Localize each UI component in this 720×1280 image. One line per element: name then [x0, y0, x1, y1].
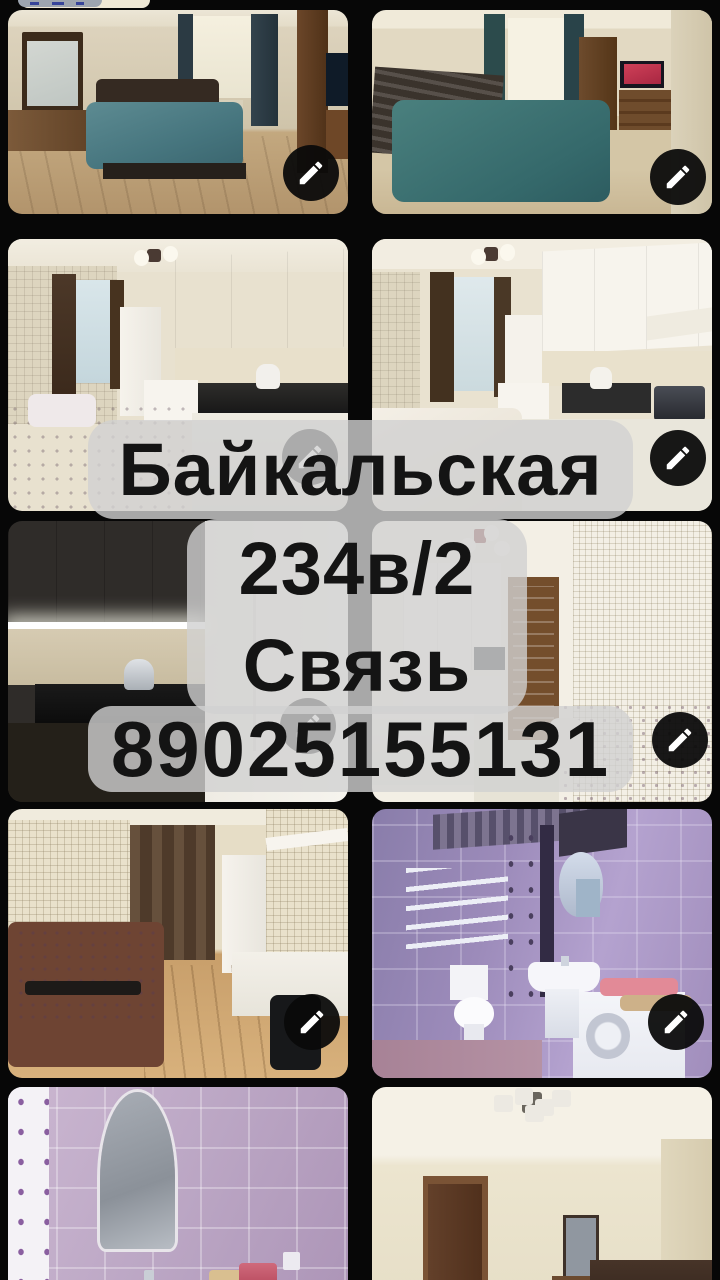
curtain	[430, 272, 454, 403]
floor	[372, 1040, 542, 1078]
edit-badge[interactable]	[648, 994, 704, 1050]
edit-badge[interactable]	[650, 430, 706, 486]
upper-dark-cabinets	[8, 521, 205, 622]
phone-number-text: 89025155131	[111, 707, 610, 791]
faucet	[561, 956, 570, 967]
towel-pink	[600, 978, 678, 995]
lamp-bulb	[500, 244, 515, 260]
ceiling-lamp	[484, 247, 498, 261]
backsplash	[542, 351, 712, 386]
microwave	[654, 386, 705, 421]
chandelier-shade	[525, 1105, 544, 1122]
address-building-text: 234в/2	[239, 520, 476, 617]
tv-screen	[624, 64, 661, 84]
pencil-icon	[663, 443, 693, 473]
edit-badge[interactable]	[650, 149, 706, 205]
ceiling-lamp	[147, 249, 161, 263]
photo-bedroom-tv[interactable]	[372, 10, 712, 214]
towel-red	[239, 1263, 276, 1280]
address-street-chip: Байкальская	[88, 420, 633, 519]
dresser	[619, 90, 672, 131]
pencil-icon	[296, 158, 326, 188]
edit-badge[interactable]	[283, 145, 339, 201]
socket	[283, 1252, 300, 1270]
upper-cabinets	[175, 248, 348, 355]
faucet	[144, 1270, 154, 1280]
bed-headboard	[590, 1260, 712, 1280]
chandelier-shade	[515, 1088, 534, 1105]
cropped-text-mark	[30, 2, 39, 5]
photo-bedroom-chandelier[interactable]	[372, 1087, 712, 1280]
toilet-tank	[450, 965, 487, 1000]
contact-label-text: Связь	[243, 617, 471, 714]
cropped-text-mark	[52, 2, 64, 5]
address-street-text: Байкальская	[118, 421, 602, 518]
arched-mirror	[100, 1092, 175, 1249]
window	[454, 277, 495, 391]
curtain	[251, 14, 278, 126]
sink	[528, 962, 599, 992]
door-panel	[428, 1184, 482, 1280]
phone-number-chip: 89025155131	[88, 706, 633, 792]
edit-badge[interactable]	[284, 994, 340, 1050]
photo-bathroom-mirror[interactable]	[8, 1087, 348, 1280]
lamp-bulb	[163, 246, 178, 262]
kettle	[590, 367, 612, 389]
tv	[326, 53, 348, 106]
photo-purple-bathroom[interactable]	[372, 809, 712, 1078]
sink-pedestal	[545, 989, 579, 1037]
pencil-icon	[297, 1007, 327, 1037]
tile-grid	[8, 1087, 348, 1280]
backsplash	[8, 629, 205, 685]
pencil-icon	[665, 725, 695, 755]
window	[508, 18, 566, 104]
sofa-seat-stripe	[25, 981, 141, 994]
photo-bedroom-mirror[interactable]	[8, 10, 348, 214]
sofa-cushion-floral	[15, 927, 158, 1018]
upper-cabinets	[542, 243, 712, 355]
address-building-contact-chip: 234в/2 Связь	[187, 519, 527, 714]
hanging-towel	[576, 879, 600, 917]
cropped-text-mark	[76, 2, 84, 5]
mirror-glass	[27, 41, 78, 106]
kettle	[256, 364, 280, 388]
chandelier-shade	[552, 1090, 571, 1107]
window	[76, 280, 110, 383]
kettle-chrome	[124, 659, 155, 690]
photo-room-sofa-bed[interactable]	[8, 809, 348, 1078]
pillow	[28, 394, 96, 427]
shower-curtain	[8, 1087, 49, 1280]
bed-base	[103, 163, 246, 179]
edit-badge[interactable]	[652, 712, 708, 768]
bed-teal-cover	[392, 100, 610, 202]
towel-rail	[406, 868, 508, 949]
wall-right-shade	[661, 1139, 712, 1280]
lamp-bulb	[471, 249, 486, 265]
pencil-icon	[663, 162, 693, 192]
photo-collage: Байкальская 234в/2 Связь 89025155131	[0, 0, 720, 1280]
chandelier-shade	[494, 1095, 513, 1112]
curtain	[52, 274, 76, 394]
bed-teal-cover	[86, 102, 242, 169]
led-strip	[8, 622, 205, 629]
pencil-icon	[661, 1007, 691, 1037]
